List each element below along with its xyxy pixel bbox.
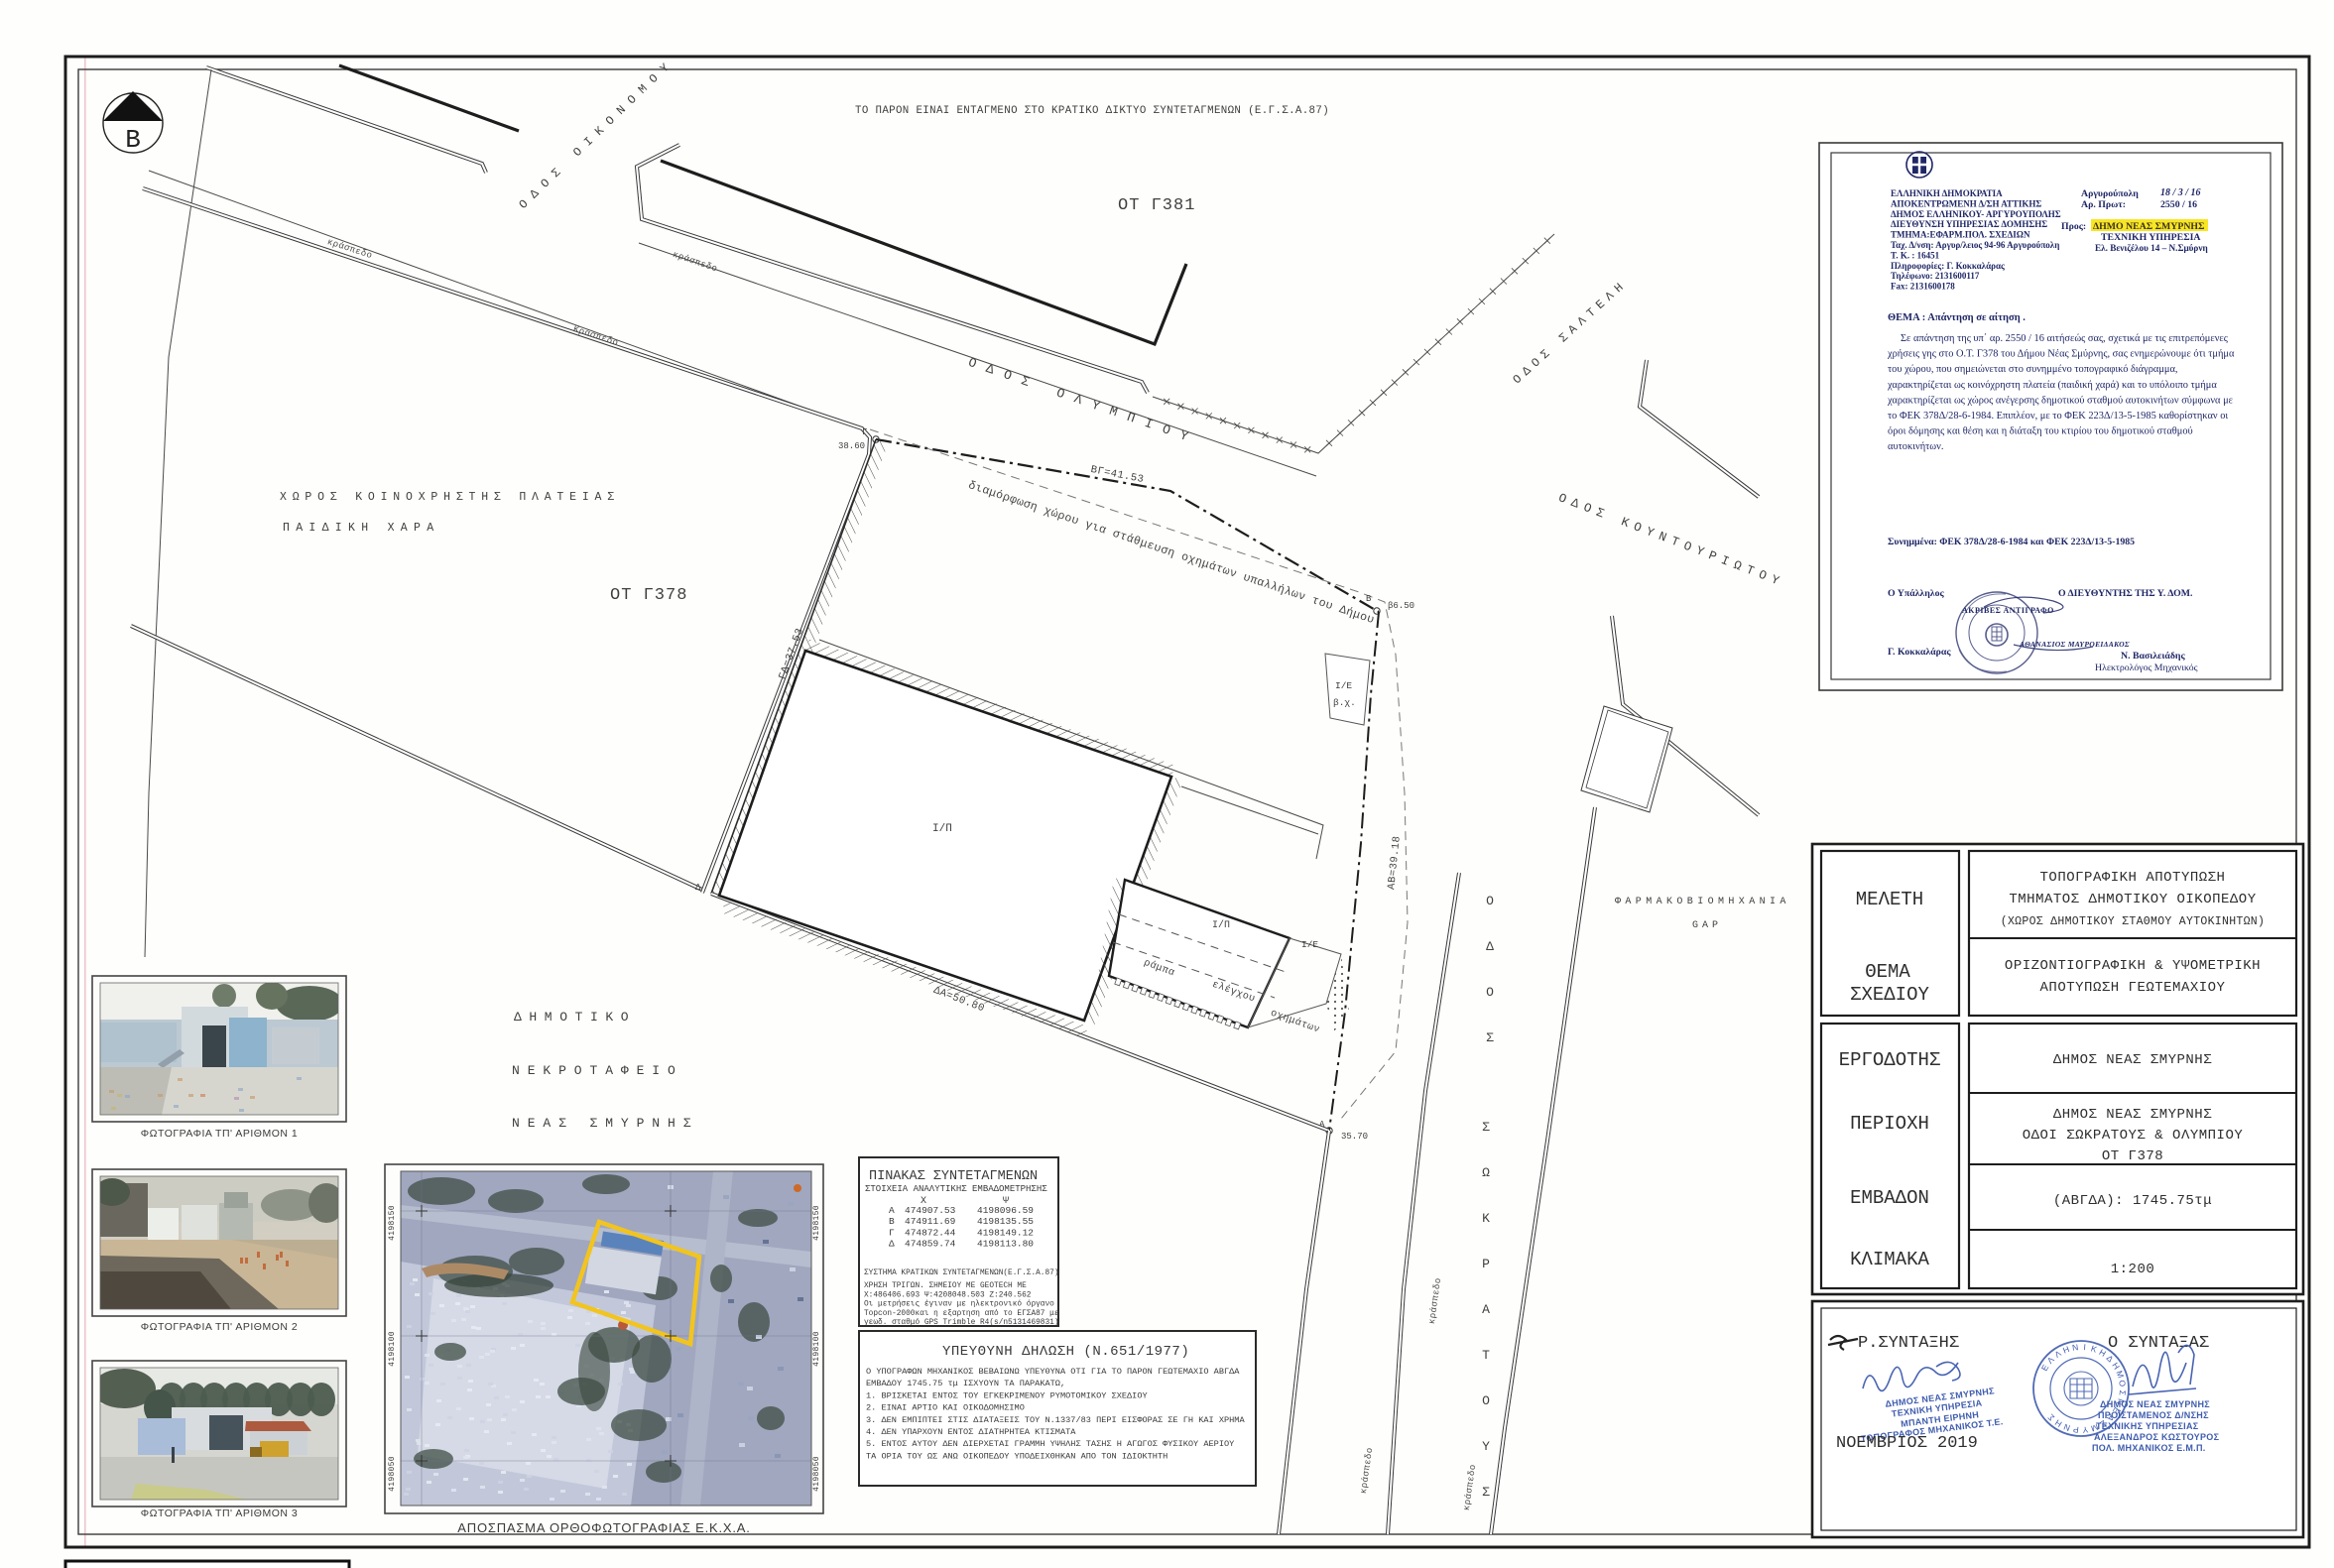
svg-text:Α: Α	[889, 1205, 895, 1216]
svg-text:χαρακτηρίζεται ως χώρος ανέγερ: χαρακτηρίζεται ως χώρος ανέγερσης δημοτι…	[1887, 395, 2234, 406]
svg-text:ΕΜΒΑΔΟΝ: ΕΜΒΑΔΟΝ	[1850, 1187, 1929, 1209]
svg-text:Σε απάντηση της υπ΄ αρ. 2550: Σε απάντηση της υπ΄ αρ. 2550 / 16 αιτήσε…	[1901, 333, 2229, 344]
svg-text:χαρακτηρίζεται ως κοινόχρηστη: χαρακτηρίζεται ως κοινόχρηστη πλατεία (π…	[1887, 380, 2217, 391]
svg-text:Β: Β	[889, 1216, 895, 1227]
svg-text:Ι/Π: Ι/Π	[932, 823, 952, 835]
svg-text:1:200: 1:200	[2111, 1262, 2155, 1277]
svg-text:ΑΘΑΝΑΣΙΟΣ ΜΑΥΡΟΕΙΔΑΚΟΣ: ΑΘΑΝΑΣΙΟΣ ΜΑΥΡΟΕΙΔΑΚΟΣ	[2019, 640, 2130, 649]
svg-text:Ν. Βασιλειάδης: Ν. Βασιλειάδης	[2121, 651, 2185, 662]
svg-text:ΟΤ Γ378: ΟΤ Γ378	[2102, 1148, 2163, 1164]
svg-text:ΤΟΠΟΓΡΑΦΙΚΗ ΑΠΟΤΥΠΩΣΗ: ΤΟΠΟΓΡΑΦΙΚΗ ΑΠΟΤΥΠΩΣΗ	[2040, 870, 2226, 886]
svg-text:Σ: Σ	[1482, 1485, 1490, 1500]
svg-text:ΟΤ Γ381: ΟΤ Γ381	[1118, 196, 1195, 215]
svg-text:ΠΑΙΔΙΚΗ ΧΑΡΑ: ΠΑΙΔΙΚΗ ΧΑΡΑ	[283, 522, 439, 535]
svg-text:ΤΕΧΝΙΚΗΣ ΥΠΗΡΕΣΙΑΣ: ΤΕΧΝΙΚΗΣ ΥΠΗΡΕΣΙΑΣ	[2096, 1421, 2199, 1431]
svg-text:ΔΗΜΟΣ ΝΕΑΣ ΣΜΥΡΝΗΣ: ΔΗΜΟΣ ΝΕΑΣ ΣΜΥΡΝΗΣ	[2053, 1052, 2212, 1068]
svg-text:Ηλεκτρολόγος Μηχανικός: Ηλεκτρολόγος Μηχανικός	[2095, 663, 2198, 673]
svg-text:ΑΚΡΙΒΕΣ ΑΝΤΙΓΡΑΦΟ: ΑΚΡΙΒΕΣ ΑΝΤΙΓΡΑΦΟ	[1962, 606, 2054, 615]
svg-text:ΧΡΗΣΗ ΤΡΙΓΩΝ. ΣΗΜΕΙΟΥ ΜΕ GEOTE: ΧΡΗΣΗ ΤΡΙΓΩΝ. ΣΗΜΕΙΟΥ ΜΕ GEOTECH ΜΕ	[864, 1282, 1027, 1290]
svg-text:Υ: Υ	[1482, 1439, 1490, 1454]
svg-text:4. ΔΕΝ ΥΠΑΡΧΟΥΝ ΕΝΤΟΣ ΔΙΑΤΗΡΗΤ: 4. ΔΕΝ ΥΠΑΡΧΟΥΝ ΕΝΤΟΣ ΔΙΑΤΗΡΗΤΕΑ ΚΤΙΣΜΑΤ…	[866, 1427, 1076, 1437]
svg-text:ΠΟΛ. ΜΗΧΑΝΙΚΟΣ Ε.Μ.Π.: ΠΟΛ. ΜΗΧΑΝΙΚΟΣ Ε.Μ.Π.	[2092, 1443, 2206, 1453]
svg-text:474907.53: 474907.53	[905, 1205, 956, 1216]
svg-text:Α: Α	[1482, 1302, 1490, 1317]
svg-text:Χ:486406.693 Ψ:4208048.503 Ζ:2: Χ:486406.693 Ψ:4208048.503 Ζ:240.562	[864, 1291, 1032, 1299]
svg-text:Πληροφορίες: Γ. Κοκκαλάρας: Πληροφορίες: Γ. Κοκκαλάρας	[1891, 261, 2005, 271]
svg-text:4198096.59: 4198096.59	[977, 1205, 1034, 1216]
svg-text:ΤΟ ΠΑΡΟΝ ΕΙΝΑΙ ΕΝΤΑΓΜΕΝΟ ΣΤΟ Κ: ΤΟ ΠΑΡΟΝ ΕΙΝΑΙ ΕΝΤΑΓΜΕΝΟ ΣΤΟ ΚΡΑΤΙΚΟ ΔΙΚ…	[855, 105, 1329, 117]
svg-text:ΠΙΝΑΚΑΣ ΣΥΝΤΕΤΑΓΜΕΝΩΝ: ΠΙΝΑΚΑΣ ΣΥΝΤΕΤΑΓΜΕΝΩΝ	[869, 1169, 1038, 1184]
svg-text:4198050: 4198050	[812, 1456, 821, 1492]
svg-text:Γ: Γ	[862, 427, 867, 437]
svg-text:Αρ. Πρωτ:: Αρ. Πρωτ:	[2081, 199, 2126, 210]
svg-text:ΜΕΛΕΤΗ: ΜΕΛΕΤΗ	[1856, 889, 1923, 910]
svg-text:Ο: Ο	[1486, 985, 1494, 1000]
svg-text:ΟΔΟΙ ΣΩΚΡΑΤΟΥΣ & ΟΛΥΜΠΙΟΥ: ΟΔΟΙ ΣΩΚΡΑΤΟΥΣ & ΟΛΥΜΠΙΟΥ	[2023, 1128, 2244, 1144]
svg-text:Σ: Σ	[1486, 1030, 1494, 1045]
svg-text:ΚΛΙΜΑΚΑ: ΚΛΙΜΑΚΑ	[1850, 1249, 1929, 1270]
svg-text:Αργυρούπολη: Αργυρούπολη	[2081, 188, 2139, 199]
svg-text:Σ: Σ	[1482, 1120, 1490, 1135]
svg-text:Συνημμένα: ΦΕΚ 378Δ/28-6-1984: Συνημμένα: ΦΕΚ 378Δ/28-6-1984 και ΦΕΚ 22…	[1888, 537, 2135, 547]
svg-text:(ΧΩΡΟΣ ΔΗΜΟΤΙΚΟΥ ΣΤΑΘΜΟΥ ΑΥΤΟΚ: (ΧΩΡΟΣ ΔΗΜΟΤΙΚΟΥ ΣΤΑΘΜΟΥ ΑΥΤΟΚΙΝΗΤΩΝ)	[2001, 915, 2265, 928]
svg-text:4198135.55: 4198135.55	[977, 1216, 1034, 1227]
svg-text:ΠΡΟΪΣΤΑΜΕΝΟΣ Δ/ΝΣΗΣ: ΠΡΟΪΣΤΑΜΕΝΟΣ Δ/ΝΣΗΣ	[2098, 1410, 2209, 1420]
svg-text:4198149.12: 4198149.12	[977, 1227, 1034, 1238]
svg-text:ΑΛΕΞΑΝΔΡΟΣ ΚΩΣΤΟΥΡΟΣ: ΑΛΕΞΑΝΔΡΟΣ ΚΩΣΤΟΥΡΟΣ	[2094, 1432, 2220, 1442]
svg-text:Τηλέφωνο: 2131600117: Τηλέφωνο: 2131600117	[1891, 271, 1980, 281]
svg-text:4198113.80: 4198113.80	[977, 1239, 1034, 1250]
svg-text:β6.50: β6.50	[1388, 601, 1414, 611]
svg-text:ΔΗΜΟΤΙΚΟ: ΔΗΜΟΤΙΚΟ	[514, 1010, 636, 1025]
svg-text:ΤΜΗΜΑΤΟΣ ΔΗΜΟΤΙΚΟΥ ΟΙΚΟΠΕΔΟΥ: ΤΜΗΜΑΤΟΣ ΔΗΜΟΤΙΚΟΥ ΟΙΚΟΠΕΔΟΥ	[2009, 892, 2256, 907]
svg-text:ΕΡΓΟΔΟΤΗΣ: ΕΡΓΟΔΟΤΗΣ	[1839, 1049, 1941, 1071]
svg-text:ΣΤΟΙΧΕΙΑ ΑΝΑΛΥΤΙΚΗΣ ΕΜΒΑΔΟΜΕΤΡ: ΣΤΟΙΧΕΙΑ ΑΝΑΛΥΤΙΚΗΣ ΕΜΒΑΔΟΜΕΤΡΗΣΗΣ	[865, 1184, 1047, 1194]
svg-text:Ταχ. Δ/νση: Αργυρ/λειος 94-96: Ταχ. Δ/νση: Αργυρ/λειος 94-96 Αργυρούπολ…	[1891, 240, 2059, 250]
svg-text:Κ: Κ	[1482, 1211, 1490, 1226]
svg-text:Ο ΔΙΕΥΘΥΝΤΗΣ ΤΗΣ Υ. ΔΟΜ.: Ο ΔΙΕΥΘΥΝΤΗΣ ΤΗΣ Υ. ΔΟΜ.	[2058, 588, 2193, 599]
svg-text:B: B	[125, 125, 141, 155]
svg-text:38.60: 38.60	[838, 441, 865, 451]
svg-text:ΤΕΧΝΙΚΗ ΥΠΗΡΕΣΙΑ: ΤΕΧΝΙΚΗ ΥΠΗΡΕΣΙΑ	[2101, 232, 2201, 243]
svg-text:2550 / 16: 2550 / 16	[2160, 199, 2197, 210]
svg-text:ΦΑΡΜΑΚΟΒΙΟΜΗΧΑΝΙΑ: ΦΑΡΜΑΚΟΒΙΟΜΗΧΑΝΙΑ	[1615, 897, 1790, 907]
svg-text:Ελ. Βενιζέλου 14 – Ν.Σμύρνη: Ελ. Βενιζέλου 14 – Ν.Σμύρνη	[2095, 243, 2208, 253]
svg-text:Ω: Ω	[1482, 1165, 1490, 1180]
svg-text:Σ: Σ	[2118, 1389, 2128, 1395]
svg-text:Ο ΣΥΝΤΑΞΑΣ: Ο ΣΥΝΤΑΞΑΣ	[2108, 1334, 2209, 1353]
svg-text:Ι/Ε: Ι/Ε	[1335, 680, 1352, 691]
svg-text:Ο ΥΠΟΓΡΑΦΩΝ ΜΗΧΑΝΙΚΟΣ ΒΕΒΑΙΩΝΩ: Ο ΥΠΟΓΡΑΦΩΝ ΜΗΧΑΝΙΚΟΣ ΒΕΒΑΙΩΝΩ ΥΠΕΥΘΥΝΑ …	[866, 1367, 1240, 1377]
svg-text:2. ΕΙΝΑΙ ΑΡΤΙΟ ΚΑΙ ΟΙΚΟΔΟΜΗΣΙΜ: 2. ΕΙΝΑΙ ΑΡΤΙΟ ΚΑΙ ΟΙΚΟΔΟΜΗΣΙΜΟ	[866, 1403, 1025, 1413]
svg-text:Οι μετρήσεις έγιναν με ηλεκτρο: Οι μετρήσεις έγιναν με ηλεκτρονικό όργαν…	[864, 1301, 1054, 1309]
svg-text:Ρ.ΣΥΝΤΑΞΗΣ: Ρ.ΣΥΝΤΑΞΗΣ	[1858, 1334, 1959, 1353]
svg-text:Β: Β	[1366, 594, 1372, 604]
svg-text:ΣΥΣΤΗΜΑ ΚΡΑΤΙΚΩΝ ΣΥΝΤΕΤΑΓΜΕΝΩΝ: ΣΥΣΤΗΜΑ ΚΡΑΤΙΚΩΝ ΣΥΝΤΕΤΑΓΜΕΝΩΝ(Ε.Γ.Σ.Α.8…	[864, 1269, 1059, 1277]
svg-text:Ι/Ε: Ι/Ε	[1301, 939, 1318, 950]
svg-text:ΔΙΕΥΘΥΝΣΗ ΥΠΗΡΕΣΙΑΣ ΔΟΜΗΣΗΣ: ΔΙΕΥΘΥΝΣΗ ΥΠΗΡΕΣΙΑΣ ΔΟΜΗΣΗΣ	[1891, 219, 2047, 229]
svg-text:ΦΩΤΟΓΡΑΦΙΑ ΤΠ' ΑΡΙΘΜΟΝ 1: ΦΩΤΟΓΡΑΦΙΑ ΤΠ' ΑΡΙΘΜΟΝ 1	[141, 1128, 298, 1140]
svg-text:το ΦΕΚ 378Δ/28-6-1984. Επιπλέο: το ΦΕΚ 378Δ/28-6-1984. Επιπλέον, με το Φ…	[1888, 411, 2228, 422]
svg-text:ΘΕΜΑ: ΘΕΜΑ	[1865, 961, 1910, 983]
svg-text:Ρ: Ρ	[1482, 1257, 1490, 1271]
svg-text:ΕΛΛΗΝΙΚΗ ΔΗΜΟΚΡΑΤΙΑ: ΕΛΛΗΝΙΚΗ ΔΗΜΟΚΡΑΤΙΑ	[1891, 188, 2003, 198]
svg-text:Τ: Τ	[1482, 1348, 1490, 1363]
svg-text:γεωδ. σταθμό GPS Trimble R4(s/: γεωδ. σταθμό GPS Trimble R4(s/n513146983…	[864, 1319, 1059, 1327]
svg-text:4198100: 4198100	[812, 1331, 821, 1367]
svg-text:ΑΠΟΣΠΑΣΜΑ ΟΡΘΟΦΩΤΟΓΡΑΦΙΑΣ Ε.: ΑΠΟΣΠΑΣΜΑ ΟΡΘΟΦΩΤΟΓΡΑΦΙΑΣ Ε.Κ.Χ.Α.	[457, 1520, 750, 1535]
svg-text:ΔΗΜΟΣ ΕΛΛΗΝΙΚΟΥ- ΑΡΓΥΡΟΥΠΟΛΗΣ: ΔΗΜΟΣ ΕΛΛΗΝΙΚΟΥ- ΑΡΓΥΡΟΥΠΟΛΗΣ	[1891, 209, 2061, 219]
svg-text:ΟΡΙΖΟΝΤΙΟΓΡΑΦΙΚΗ & ΥΨΟΜΕΤΡΙΚΗ: ΟΡΙΖΟΝΤΙΟΓΡΑΦΙΚΗ & ΥΨΟΜΕΤΡΙΚΗ	[2005, 958, 2261, 974]
svg-text:Fax: 2131600178: Fax: 2131600178	[1891, 282, 1955, 292]
svg-text:ΝΕΑΣ ΣΜΥΡΝΗΣ: ΝΕΑΣ ΣΜΥΡΝΗΣ	[512, 1116, 698, 1131]
svg-text:3. ΔΕΝ ΕΜΠΙΠΤΕΙ ΣΤΙΣ ΔΙΑΤΑΞΕΙΣ: 3. ΔΕΝ ΕΜΠΙΠΤΕΙ ΣΤΙΣ ΔΙΑΤΑΞΕΙΣ ΤΟΥ Ν.133…	[866, 1415, 1245, 1425]
svg-text:ΝΟΕΜΒΡΙΟΣ 2019: ΝΟΕΜΒΡΙΟΣ 2019	[1836, 1434, 1978, 1453]
svg-text:GAP: GAP	[1692, 920, 1722, 931]
svg-text:ΔΗΜΟΣ ΝΕΑΣ ΣΜΥΡΝΗΣ: ΔΗΜΟΣ ΝΕΑΣ ΣΜΥΡΝΗΣ	[2053, 1107, 2212, 1123]
svg-text:ΤΑ ΟΡΙΑ ΤΟΥ ΩΣ ΑΝΩ ΟΙΚΟΠΕΔΟΥ Υ: ΤΑ ΟΡΙΑ ΤΟΥ ΩΣ ΑΝΩ ΟΙΚΟΠΕΔΟΥ ΥΠΟΔΕΙΧΘΗΚΑ…	[866, 1451, 1167, 1461]
svg-text:Topcon-2000και η εξαρτηση από: Topcon-2000και η εξαρτηση από το ΕΓΣΑ87 …	[864, 1310, 1059, 1318]
svg-text:5. ΕΝΤΟΣ ΑΥΤΟΥ ΔΕΝ ΔΙΕΡΧΕΤΑΙ Γ: 5. ΕΝΤΟΣ ΑΥΤΟΥ ΔΕΝ ΔΙΕΡΧΕΤΑΙ ΓΡΑΜΜΗ ΥΨΗΛ…	[866, 1439, 1234, 1449]
svg-text:ΑΠΟΤΥΠΩΣΗ ΓΕΩΤΕΜΑΧΙΟΥ: ΑΠΟΤΥΠΩΣΗ ΓΕΩΤΕΜΑΧΙΟΥ	[2040, 980, 2226, 996]
svg-text:ΘΕΜΑ : Απάντηση σε αίτηση .: ΘΕΜΑ : Απάντηση σε αίτηση .	[1888, 312, 2026, 323]
svg-text:ΧΩΡΟΣ ΚΟΙΝΟΧΡΗΣΤΗΣ ΠΛΑΤΕΙΑΣ: ΧΩΡΟΣ ΚΟΙΝΟΧΡΗΣΤΗΣ ΠΛΑΤΕΙΑΣ	[280, 491, 620, 504]
svg-text:1. ΒΡΙΣΚΕΤΑΙ ΕΝΤΟΣ ΤΟΥ ΕΓΚΕΚΡΙ: 1. ΒΡΙΣΚΕΤΑΙ ΕΝΤΟΣ ΤΟΥ ΕΓΚΕΚΡΙΜΕΝΟΥ ΡΥΜΟ…	[866, 1390, 1148, 1400]
svg-text:Ο: Ο	[1486, 894, 1494, 908]
svg-text:όροι δόμησης και θέση και η δι: όροι δόμησης και θέση και η διάταξη του …	[1888, 426, 2193, 437]
svg-text:4198150: 4198150	[388, 1205, 397, 1241]
svg-text:ΟΤ Γ378: ΟΤ Γ378	[610, 586, 687, 605]
svg-text:ΔΗΜΟ ΝΕΑΣ ΣΜΥΡΝΗΣ: ΔΗΜΟ ΝΕΑΣ ΣΜΥΡΝΗΣ	[2093, 221, 2204, 232]
svg-text:Δ: Δ	[695, 883, 701, 893]
svg-text:ΔΗΜΟΣ ΝΕΑΣ ΣΜΥΡΝΗΣ: ΔΗΜΟΣ ΝΕΑΣ ΣΜΥΡΝΗΣ	[2100, 1399, 2210, 1409]
svg-text:Γ: Γ	[889, 1227, 895, 1238]
svg-text:ΠΕΡΙΟΧΗ: ΠΕΡΙΟΧΗ	[1850, 1113, 1929, 1135]
svg-text:β.χ.: β.χ.	[1333, 697, 1356, 708]
svg-text:18 / 3 / 16: 18 / 3 / 16	[2160, 187, 2201, 198]
svg-text:Δ: Δ	[1486, 939, 1494, 954]
svg-text:(ΑΒΓΔΑ): 1745.75τμ: (ΑΒΓΔΑ): 1745.75τμ	[2053, 1193, 2212, 1209]
svg-text:του χώρου, που σημειώνεται: του χώρου, που σημειώνεται στο συνημμένο…	[1888, 364, 2178, 375]
svg-text:Δ: Δ	[889, 1239, 895, 1250]
svg-text:Ι/Π: Ι/Π	[1212, 919, 1230, 931]
svg-text:4198150: 4198150	[812, 1205, 821, 1241]
svg-text:Ο Υπάλληλος: Ο Υπάλληλος	[1888, 588, 1945, 599]
svg-text:Γ. Κοκκαλάρας: Γ. Κοκκαλάρας	[1888, 647, 1951, 658]
svg-text:ΑΠΟΚΕΝΤΡΩΜΕΝΗ Δ/ΣΗ ΑΤΤΙΚΗΣ: ΑΠΟΚΕΝΤΡΩΜΕΝΗ Δ/ΣΗ ΑΤΤΙΚΗΣ	[1891, 198, 2041, 208]
svg-text:ΥΠΕΥΘΥΝΗ ΔΗΛΩΣΗ (Ν.651/1977): ΥΠΕΥΘΥΝΗ ΔΗΛΩΣΗ (Ν.651/1977)	[942, 1344, 1189, 1360]
svg-text:ΦΩΤΟΓΡΑΦΙΑ ΤΠ' ΑΡΙΘΜΟΝ 3: ΦΩΤΟΓΡΑΦΙΑ ΤΠ' ΑΡΙΘΜΟΝ 3	[141, 1508, 298, 1519]
svg-text:χρήσεις γης στο Ο.Τ. Γ378 του: χρήσεις γης στο Ο.Τ. Γ378 του Δήμου Νέας…	[1887, 349, 2235, 360]
svg-text:35.70: 35.70	[1341, 1132, 1368, 1142]
svg-text:Τ. Κ. : 16451: Τ. Κ. : 16451	[1891, 250, 1940, 260]
svg-text:474911.69: 474911.69	[905, 1216, 956, 1227]
svg-text:αυτοκινήτων.: αυτοκινήτων.	[1888, 441, 1943, 452]
svg-text:Ο: Ο	[1482, 1393, 1490, 1408]
svg-text:474872.44: 474872.44	[905, 1227, 956, 1238]
svg-text:ΣΧΕΔΙΟΥ: ΣΧΕΔΙΟΥ	[1850, 984, 1929, 1006]
svg-text:ΝΕΚΡΟΤΑΦΕΙΟ: ΝΕΚΡΟΤΑΦΕΙΟ	[512, 1063, 683, 1078]
svg-text:ΦΩΤΟΓΡΑΦΙΑ ΤΠ' ΑΡΙΘΜΟΝ 2: ΦΩΤΟΓΡΑΦΙΑ ΤΠ' ΑΡΙΘΜΟΝ 2	[141, 1321, 298, 1333]
svg-text:474859.74: 474859.74	[905, 1239, 956, 1250]
svg-text:ΤΜΗΜΑ:ΕΦΑΡΜ.ΠΟΛ. ΣΧΕΔΙΩΝ: ΤΜΗΜΑ:ΕΦΑΡΜ.ΠΟΛ. ΣΧΕΔΙΩΝ	[1891, 230, 2030, 240]
svg-text:4198100: 4198100	[388, 1331, 397, 1367]
svg-text:ΕΜΒΑΔΟΥ 1745.75 τμ ΙΣΧΥΟΥΝ ΤΑ: ΕΜΒΑΔΟΥ 1745.75 τμ ΙΣΧΥΟΥΝ ΤΑ ΠΑΡΑΚΑΤΩ,	[866, 1379, 1065, 1388]
svg-text:Προς:: Προς:	[2061, 221, 2086, 232]
svg-text:4198050: 4198050	[388, 1456, 397, 1492]
